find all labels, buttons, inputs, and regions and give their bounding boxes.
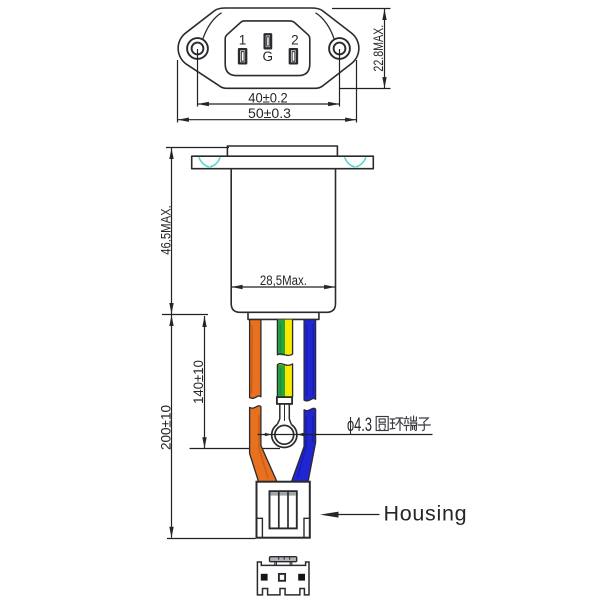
svg-text:50±0.3: 50±0.3 <box>248 106 291 121</box>
svg-text:46.5MAX.: 46.5MAX. <box>159 205 174 255</box>
svg-text:40±0.2: 40±0.2 <box>248 91 288 106</box>
svg-text:200±10: 200±10 <box>159 405 174 450</box>
svg-text:G: G <box>263 49 274 64</box>
svg-text:ϕ4.3: ϕ4.3 <box>347 415 372 436</box>
svg-text:1: 1 <box>239 33 247 48</box>
svg-text:22.8MAX.: 22.8MAX. <box>371 25 386 72</box>
svg-text:2: 2 <box>291 33 299 48</box>
svg-text:28,5Max.: 28,5Max. <box>260 273 307 288</box>
svg-text:Housing: Housing <box>384 502 468 526</box>
svg-text:140±10: 140±10 <box>191 360 206 404</box>
